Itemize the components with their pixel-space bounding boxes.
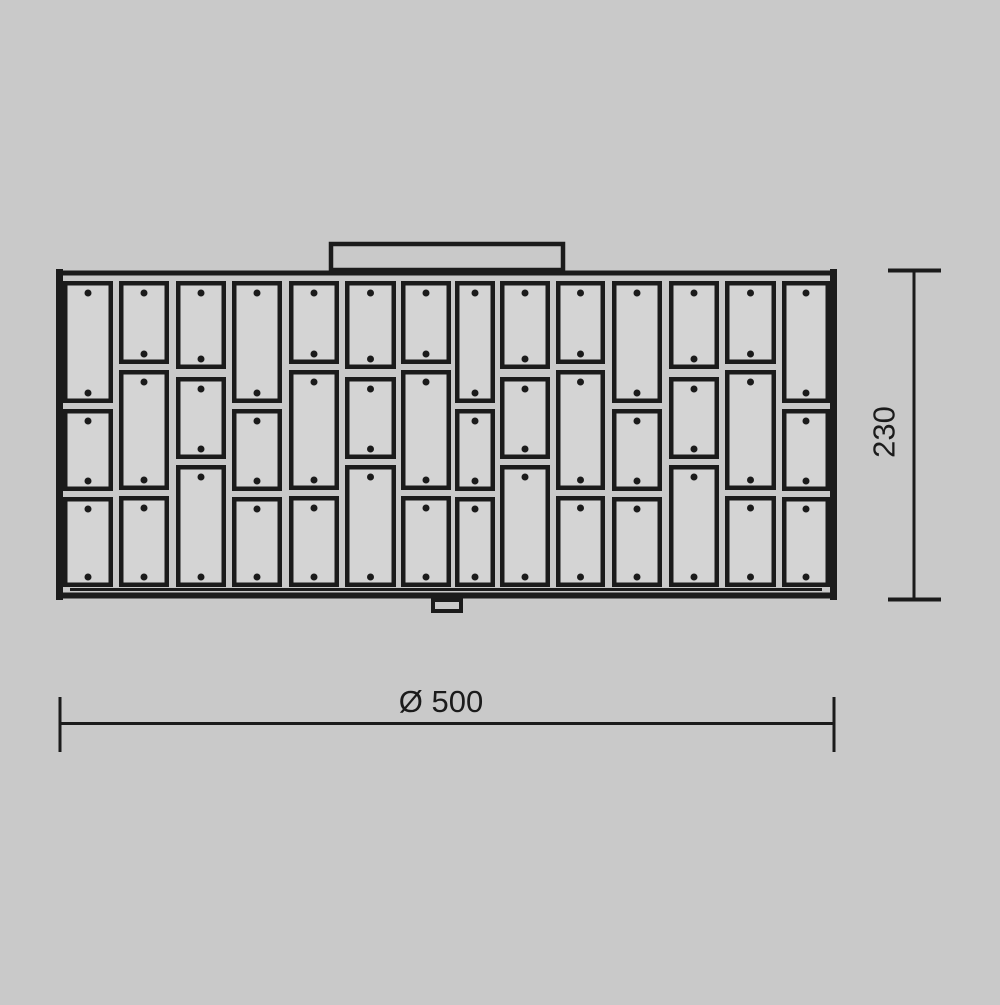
top-mounting-plate [331, 244, 563, 270]
width-dimension: Ø 500 [60, 684, 834, 752]
glass-tile-grid [65, 283, 828, 585]
width-dimension-label: Ø 500 [399, 684, 483, 719]
height-dimension: 230 [867, 270, 942, 600]
bottom-mounting-tab [433, 600, 461, 611]
technical-drawing: Ø 500 230 [0, 0, 1000, 1000]
height-dimension-label: 230 [867, 406, 902, 458]
drawing-canvas: Ø 500 230 [0, 0, 1000, 1000]
